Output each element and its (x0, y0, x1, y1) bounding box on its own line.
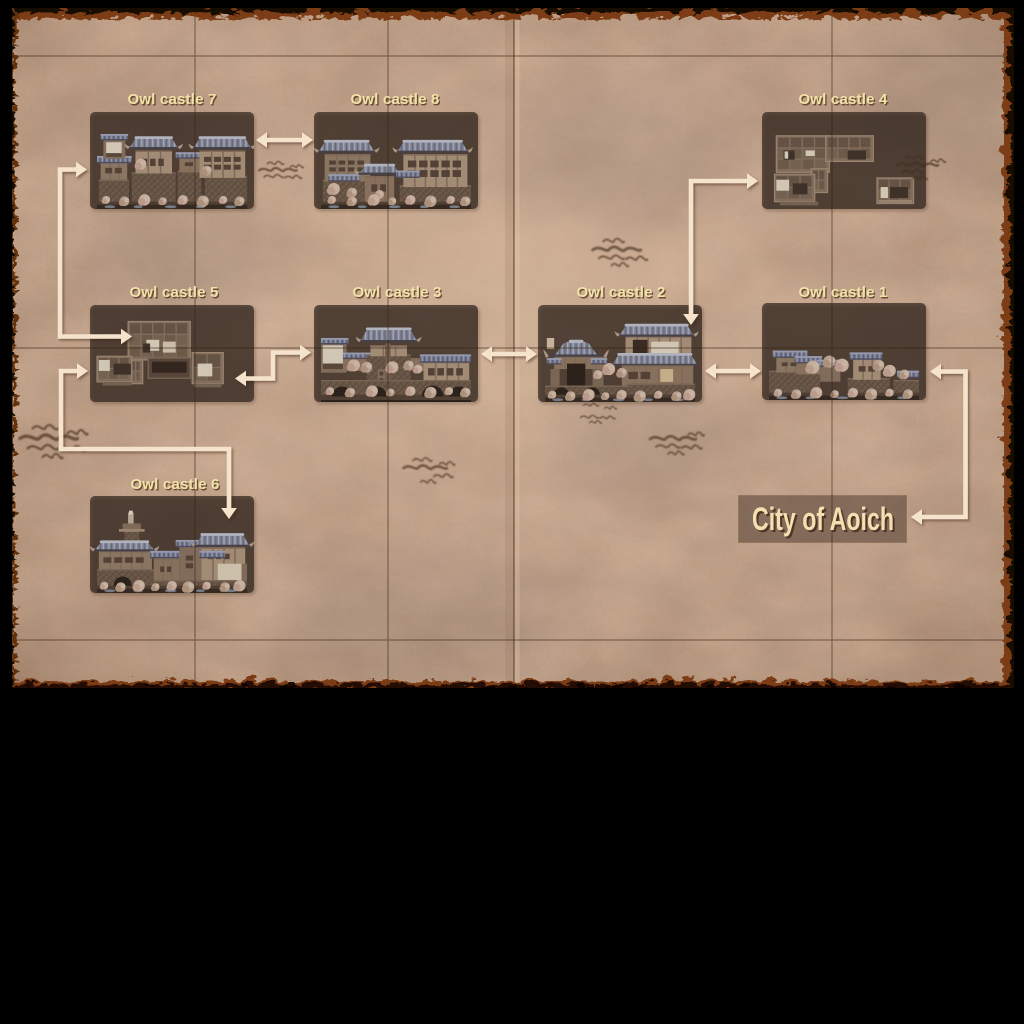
svg-text:Owl castle 6: Owl castle 6 (130, 476, 219, 493)
svg-text:Owl castle 7: Owl castle 7 (127, 91, 216, 108)
svg-text:Owl castle 1: Owl castle 1 (798, 284, 887, 301)
svg-text:Owl castle 5: Owl castle 5 (129, 284, 218, 301)
svg-text:Owl castle 8: Owl castle 8 (350, 91, 439, 108)
svg-text:Owl castle 4: Owl castle 4 (798, 91, 888, 108)
svg-text:City of Aoich: City of Aoich (752, 501, 894, 537)
svg-text:Owl castle 2: Owl castle 2 (576, 284, 665, 301)
svg-text:Owl castle 3: Owl castle 3 (352, 284, 441, 301)
